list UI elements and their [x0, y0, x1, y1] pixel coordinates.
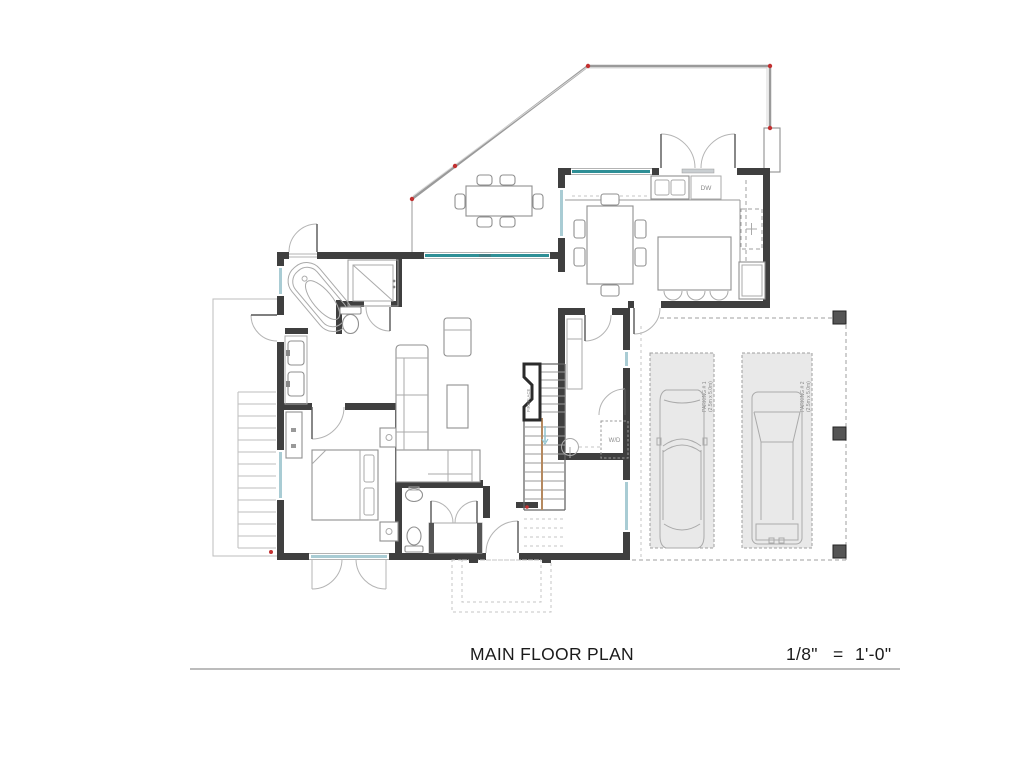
bath-door [366, 307, 390, 331]
parking-stall-2: PARKING # 2 (2.5m x 5.0m) [742, 353, 812, 548]
powder-toilet [405, 527, 423, 552]
scale-equals: = [833, 644, 844, 664]
parking-1-size: (2.5m x 5.0m) [708, 381, 714, 412]
laundry-door [599, 389, 625, 415]
bed [312, 450, 378, 520]
wall-entry-stub [483, 486, 490, 518]
mudroom-laundry: W/D [562, 319, 629, 458]
shower [348, 260, 398, 306]
deck-railing [412, 66, 770, 199]
wall-west [277, 252, 284, 560]
deck-planter [764, 128, 780, 172]
fireplace: FIREPLACE [524, 364, 540, 420]
armchair [444, 318, 471, 356]
deck-corner-markers [410, 64, 772, 201]
scale-fraction: 1/8" [786, 644, 818, 664]
dresser [286, 412, 302, 458]
wall-shower-east [396, 256, 402, 303]
drawing-sheet: DW [0, 0, 1024, 768]
gate-door-north [289, 224, 317, 252]
bedroom-door [312, 407, 344, 439]
bath-toilet [340, 307, 361, 334]
parking-stall-1: PARKING # 1 (2.5m x 5.0m) [650, 353, 714, 548]
carport-door [634, 308, 660, 334]
carport-post [833, 427, 846, 440]
dining-area [574, 194, 646, 296]
floor-plan-canvas: DW [0, 0, 1024, 768]
nightstand [380, 428, 398, 447]
wall-oven [741, 209, 762, 249]
mudroom-bench [567, 319, 582, 389]
nightstand [380, 522, 398, 541]
wall-mudroom-bottom [558, 453, 630, 460]
front-door [486, 521, 518, 553]
parking-2-size: (2.5m x 5.0m) [806, 381, 812, 412]
carport-post [833, 545, 846, 558]
mudroom-door [585, 315, 611, 341]
fireplace-label: FIREPLACE [526, 389, 531, 412]
drawing-title: MAIN FLOOR PLAN [470, 644, 634, 664]
dishwasher: DW [691, 176, 721, 199]
living-room [396, 318, 480, 482]
scale-value: 1'-0" [855, 644, 891, 664]
coffee-table [447, 385, 468, 428]
refrigerator [739, 262, 765, 299]
powder-room [405, 487, 423, 552]
dishwasher-label: DW [701, 185, 713, 192]
exterior-door-west [251, 315, 277, 341]
title-block: MAIN FLOOR PLAN 1/8" = 1'-0" [190, 644, 900, 669]
entry-closet [429, 501, 482, 553]
exterior-side-stairs [213, 299, 277, 556]
kitchen-island [658, 237, 731, 300]
wall-stair-mudroom [558, 308, 565, 460]
survey-marker [269, 550, 273, 554]
dining-table [587, 206, 633, 284]
carport: PARKING # 1 (2.5m x 5.0m) PARKING # 2 (2… [632, 311, 846, 560]
bedroom-casement-windows [312, 559, 386, 589]
washer-dryer-label: W/D [609, 438, 621, 444]
kitchen-sink [651, 176, 689, 199]
bedroom [286, 412, 398, 541]
carport-post [833, 311, 846, 324]
porch-outline [452, 556, 551, 612]
powder-sink [406, 487, 423, 502]
outdoor-dining-table [455, 175, 543, 227]
vanity-sinks [285, 336, 307, 404]
